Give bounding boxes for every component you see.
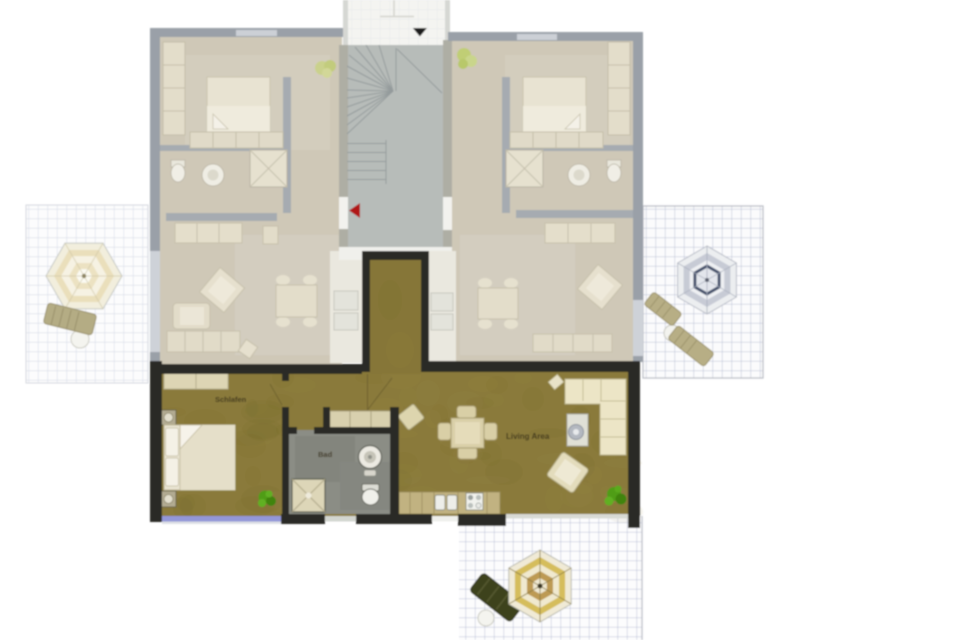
svg-text:Bad: Bad: [318, 450, 333, 459]
svg-text:Living Area: Living Area: [506, 432, 550, 441]
svg-text:Schlafen: Schlafen: [215, 395, 247, 404]
